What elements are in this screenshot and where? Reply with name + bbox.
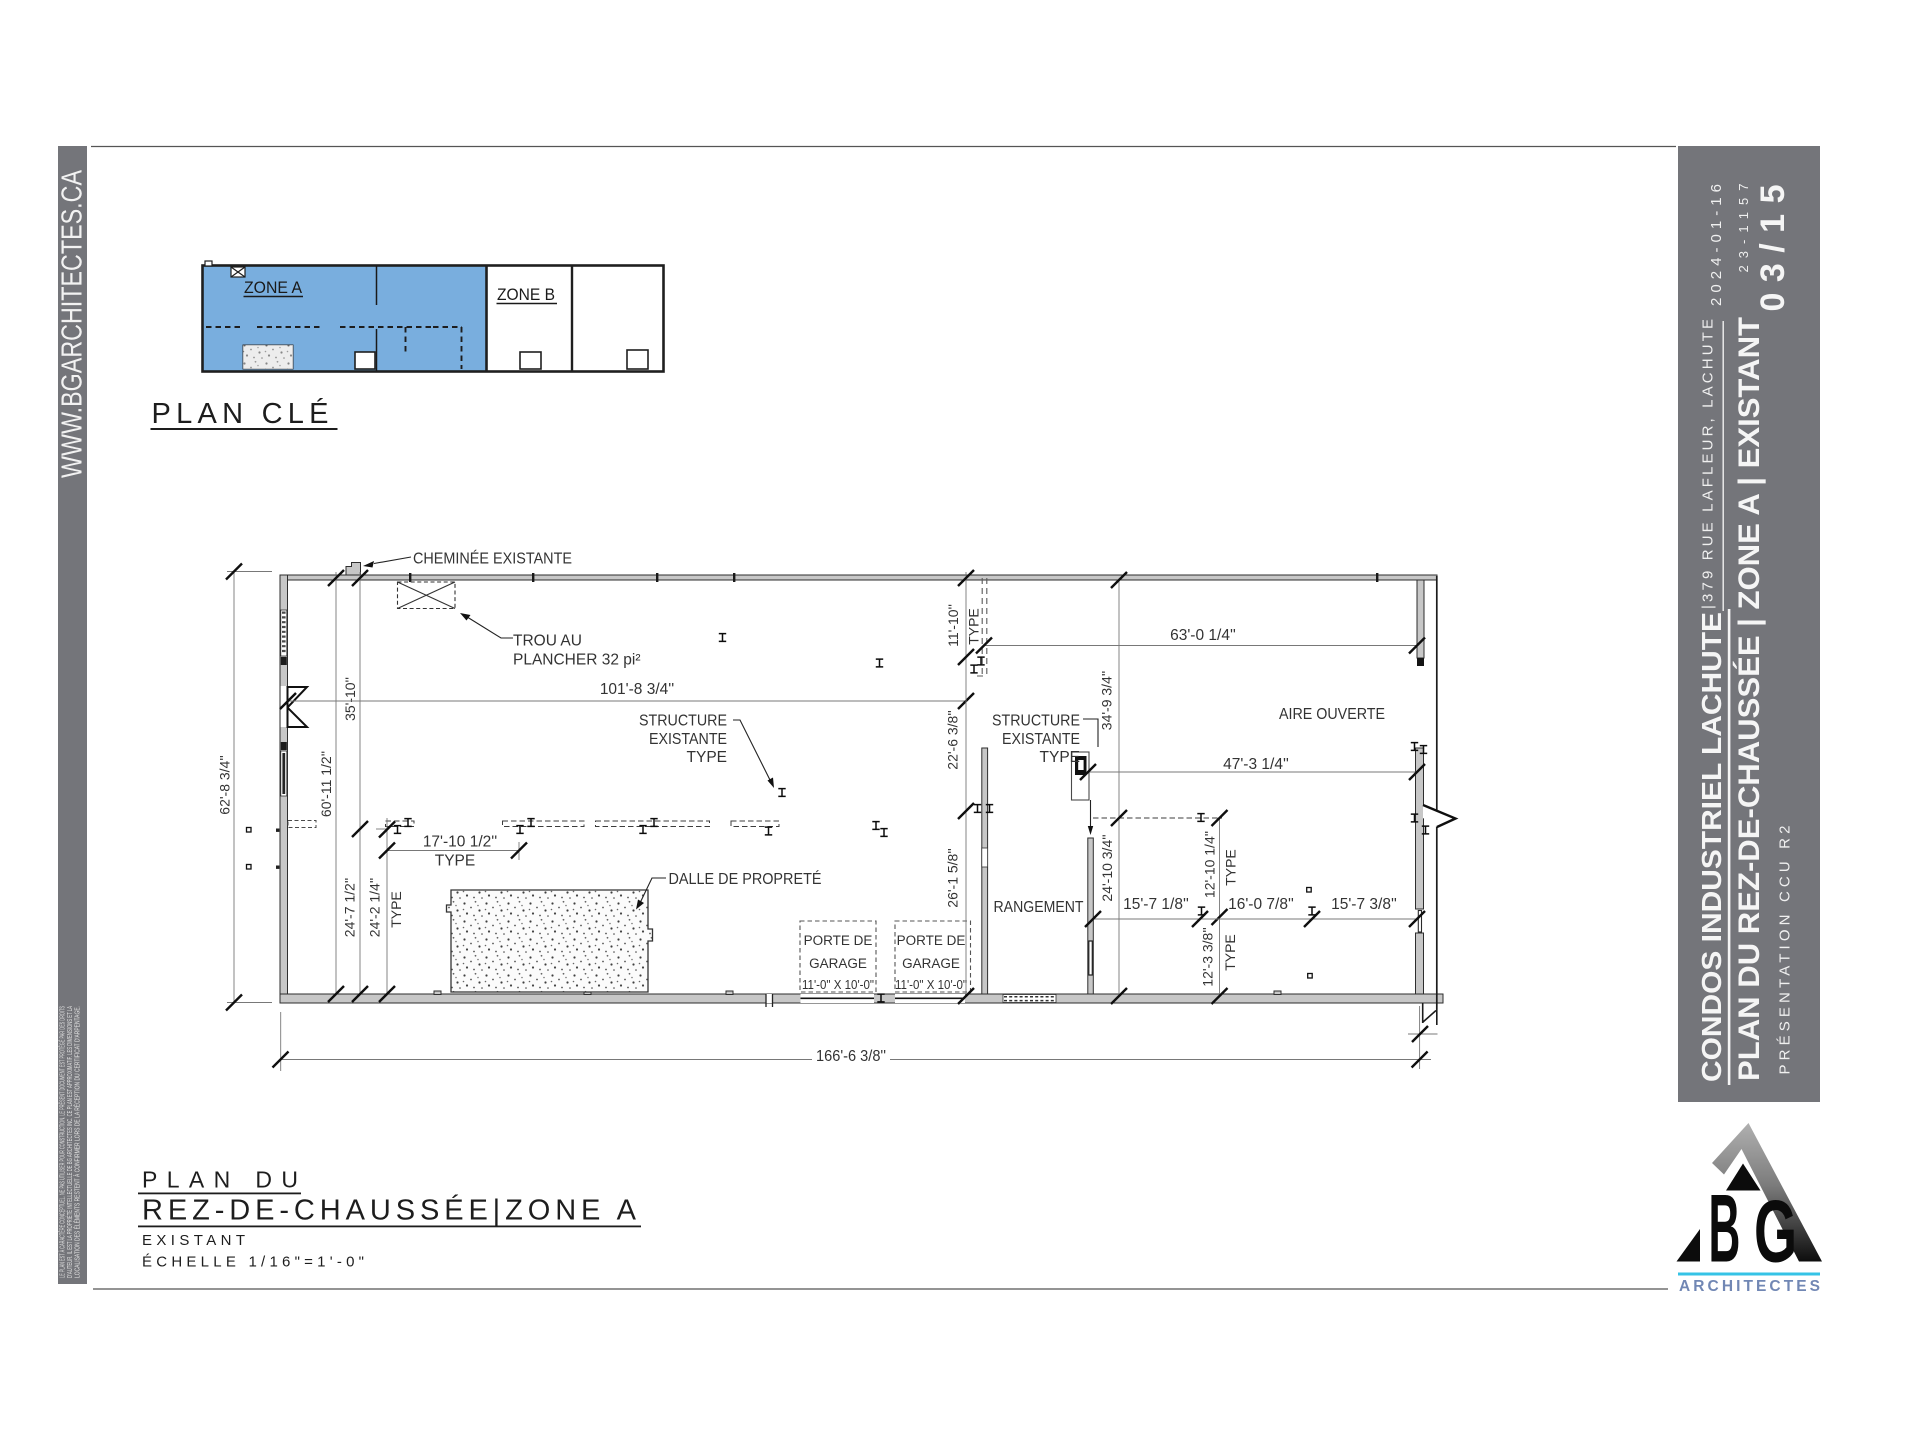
svg-text:TYPE: TYPE (687, 749, 727, 766)
svg-text:12'-10 1/4'': 12'-10 1/4'' (1202, 831, 1218, 898)
svg-text:CHEMINÉE EXISTANTE: CHEMINÉE EXISTANTE (413, 551, 572, 568)
svg-text:22'-6 3/8'': 22'-6 3/8'' (945, 710, 961, 769)
svg-text:12'-3 3/8'': 12'-3 3/8'' (1200, 927, 1216, 986)
svg-text:PLAN CLÉ: PLAN CLÉ (152, 397, 329, 430)
svg-text:PRÉSENTATION CCU R2: PRÉSENTATION CCU R2 (1777, 826, 1794, 1075)
svg-text:62'-8 3/4'': 62'-8 3/4'' (217, 755, 233, 814)
svg-text:PLAN DU REZ-DE-CHAUSSÉE | ZONE: PLAN DU REZ-DE-CHAUSSÉE | ZONE A | EXIST… (1732, 317, 1766, 1081)
svg-text:15'-7 3/8'': 15'-7 3/8'' (1331, 896, 1397, 913)
svg-text:ZONE A: ZONE A (244, 279, 302, 297)
svg-text:B: B (1709, 1174, 1741, 1282)
svg-text:WWW.BGARCHITECTES.CA: WWW.BGARCHITECTES.CA (57, 169, 89, 478)
svg-text:ARCHITECTES: ARCHITECTES (1679, 1278, 1820, 1295)
svg-text:GARAGE: GARAGE (809, 956, 867, 971)
svg-text:G: G (1754, 1181, 1797, 1280)
svg-text:TYPE: TYPE (1222, 934, 1238, 971)
svg-text:24'-2 1/4'': 24'-2 1/4'' (367, 878, 383, 937)
svg-text:RANGEMENT: RANGEMENT (994, 899, 1084, 916)
svg-text:35'-10'': 35'-10'' (342, 677, 358, 721)
svg-text:11'-0" X 10'-0": 11'-0" X 10'-0" (802, 977, 874, 992)
svg-text:GARAGE: GARAGE (902, 956, 960, 971)
svg-text:ZONE B: ZONE B (497, 286, 555, 304)
svg-text:16'-0 7/8'': 16'-0 7/8'' (1228, 896, 1294, 913)
svg-text:CONDOS INDUSTRIEL LACHUTE: CONDOS INDUSTRIEL LACHUTE (1696, 612, 1727, 1082)
svg-text:PLANCHER 32 pi²: PLANCHER 32 pi² (513, 652, 641, 669)
svg-text:LOCALISATION DES ÉLÉMENTS REST: LOCALISATION DES ÉLÉMENTS RESTENT À CONF… (73, 1006, 82, 1278)
svg-text:AIRE OUVERTE: AIRE OUVERTE (1279, 706, 1385, 723)
svg-text:15'-7 1/8'': 15'-7 1/8'' (1123, 896, 1189, 913)
svg-text:|379 RUE LAFLEUR, LACHUTE: |379 RUE LAFLEUR, LACHUTE (1700, 319, 1717, 609)
svg-text:STRUCTURE: STRUCTURE (992, 713, 1080, 730)
svg-text:TYPE: TYPE (1223, 849, 1239, 886)
svg-text:TYPE: TYPE (1040, 749, 1080, 766)
svg-text:EXISTANTE: EXISTANTE (649, 731, 727, 748)
svg-text:11'-10'': 11'-10'' (945, 604, 961, 647)
svg-text:TYPE: TYPE (966, 608, 982, 645)
svg-text:PORTE DE: PORTE DE (804, 933, 873, 948)
svg-text:17'-10 1/2'': 17'-10 1/2'' (423, 834, 497, 851)
svg-text:24'-10 3/4'': 24'-10 3/4'' (1099, 834, 1115, 901)
svg-text:TROU AU: TROU AU (513, 633, 582, 650)
svg-text:EXISTANT: EXISTANT (142, 1232, 245, 1249)
svg-text:11'-0" X 10'-0": 11'-0" X 10'-0" (895, 977, 967, 992)
svg-text:TYPE: TYPE (435, 853, 475, 870)
svg-text:60'-11 1/2'': 60'-11 1/2'' (318, 751, 334, 817)
svg-text:47'-3 1/4'': 47'-3 1/4'' (1223, 756, 1289, 773)
svg-text:101'-8 3/4'': 101'-8 3/4'' (600, 681, 674, 698)
svg-text:PORTE DE: PORTE DE (897, 933, 966, 948)
svg-text:REZ-DE-CHAUSSÉE|ZONE A: REZ-DE-CHAUSSÉE|ZONE A (142, 1194, 637, 1227)
svg-text:34'-9 3/4'': 34'-9 3/4'' (1099, 671, 1115, 730)
svg-text:166'-6 3/8'': 166'-6 3/8'' (816, 1048, 886, 1065)
svg-text:24'-7 1/2'': 24'-7 1/2'' (342, 878, 358, 937)
svg-text:ÉCHELLE 1/16"=1'-0": ÉCHELLE 1/16"=1'-0" (142, 1254, 364, 1271)
svg-text:EXISTANTE: EXISTANTE (1002, 731, 1080, 748)
svg-text:DALLE DE PROPRETÉ: DALLE DE PROPRETÉ (669, 871, 822, 888)
svg-text:STRUCTURE: STRUCTURE (639, 713, 727, 730)
svg-text:63'-0 1/4'': 63'-0 1/4'' (1170, 627, 1236, 644)
svg-text:TYPE: TYPE (388, 891, 404, 928)
svg-text:26'-1 5/8'': 26'-1 5/8'' (945, 848, 961, 907)
